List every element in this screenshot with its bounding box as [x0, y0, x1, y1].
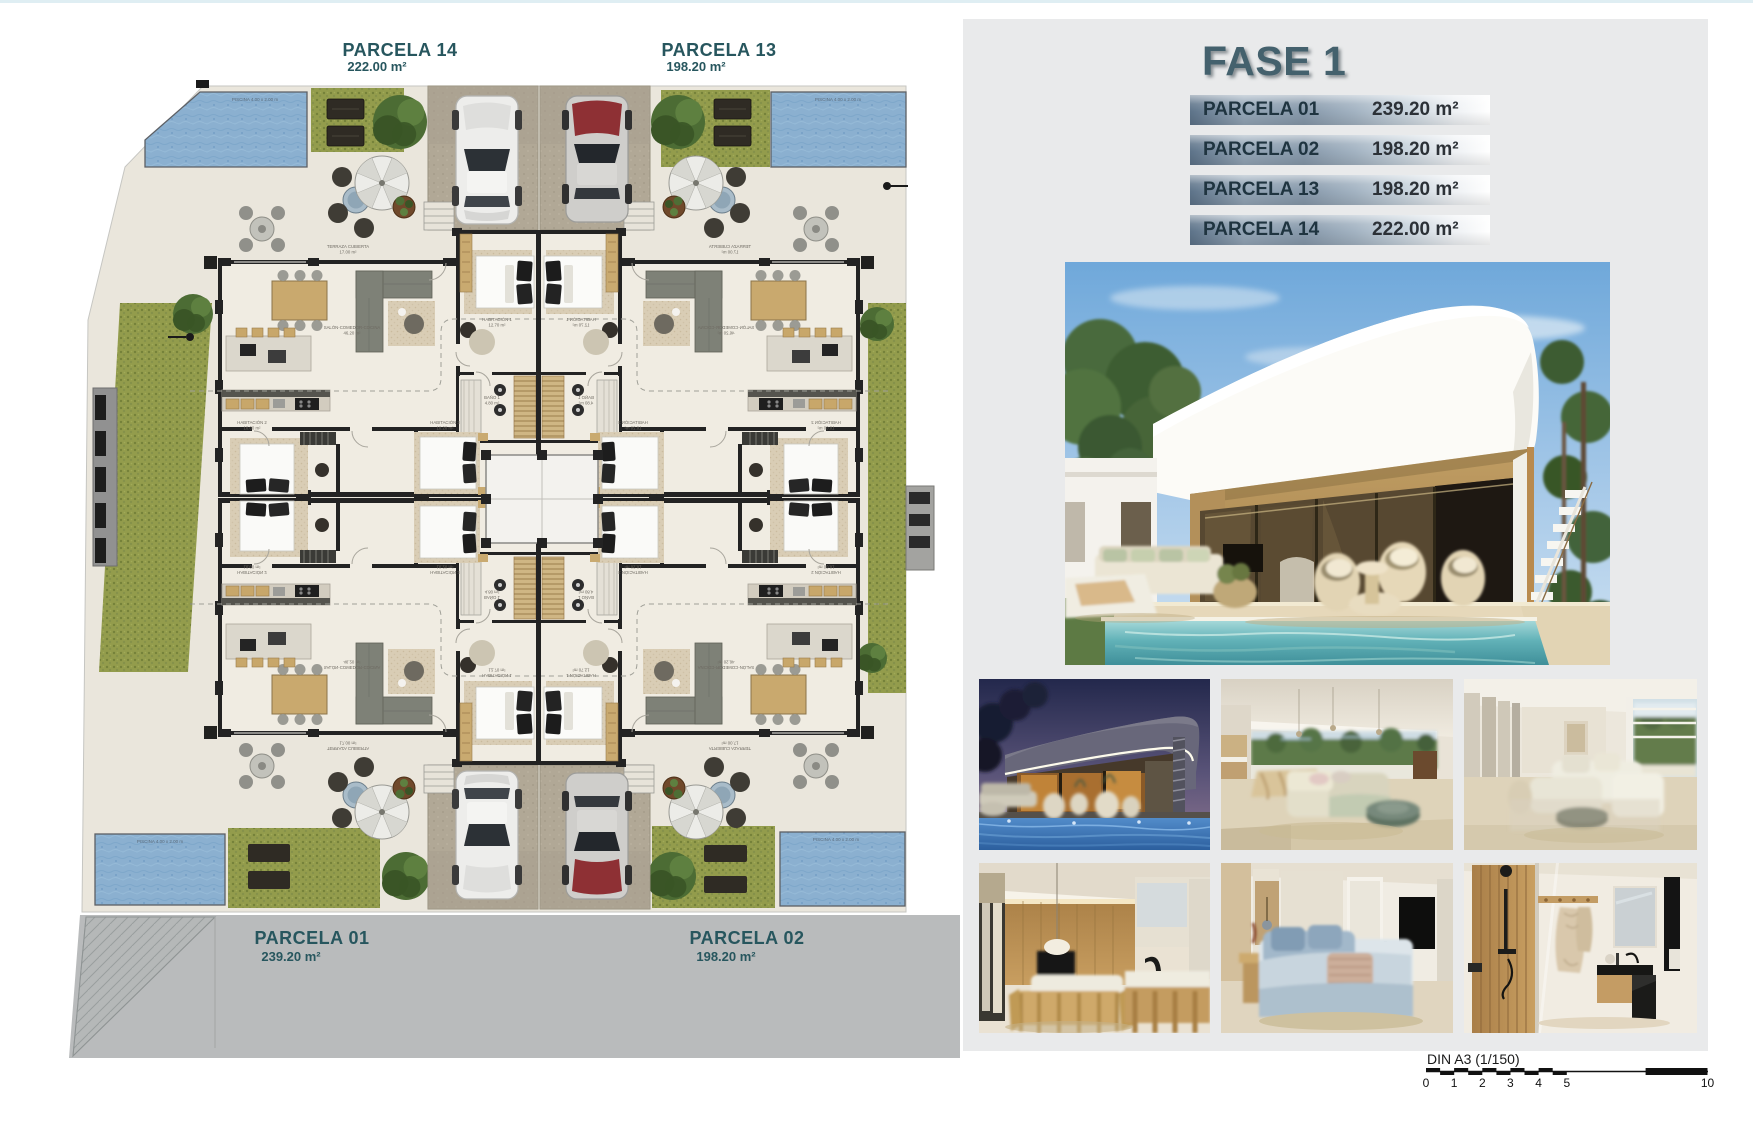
- svg-text:PARCELA 02: PARCELA 02: [689, 928, 804, 948]
- svg-text:PISCINA 4.00 x 2.00 m: PISCINA 4.00 x 2.00 m: [815, 97, 862, 102]
- svg-text:PISCINA 4.00 x 2.00 m: PISCINA 4.00 x 2.00 m: [813, 837, 860, 842]
- svg-text:239.20 m²: 239.20 m²: [261, 949, 321, 964]
- svg-text:10: 10: [1701, 1076, 1715, 1089]
- svg-text:SALÓN-COMEDOR-COCINA: SALÓN-COMEDOR-COCINA: [324, 325, 381, 330]
- svg-text:3: 3: [1507, 1076, 1514, 1089]
- svg-text:5: 5: [1563, 1076, 1570, 1089]
- svg-text:PISCINA 4.00 x 2.00 m: PISCINA 4.00 x 2.00 m: [137, 839, 184, 844]
- svg-text:12.70 m²: 12.70 m²: [489, 323, 507, 328]
- svg-text:222.00 m²: 222.00 m²: [347, 59, 407, 74]
- svg-text:17.00 m²: 17.00 m²: [340, 250, 358, 255]
- svg-text:46.20 m²: 46.20 m²: [344, 331, 362, 336]
- svg-text:10.00 m²: 10.00 m²: [244, 426, 262, 431]
- svg-text:4.80 m²: 4.80 m²: [485, 401, 500, 406]
- svg-text:HABITACIÓN 3: HABITACIÓN 3: [430, 420, 460, 425]
- svg-text:TERRAZA CUBIERTA: TERRAZA CUBIERTA: [327, 244, 369, 249]
- svg-text:HABITACIÓN 1: HABITACIÓN 1: [482, 317, 512, 322]
- svg-text:PISCINA 4.00 x 2.00 m: PISCINA 4.00 x 2.00 m: [232, 97, 279, 102]
- svg-text:10.20 m²: 10.20 m²: [437, 426, 455, 431]
- svg-text:PARCELA 14: PARCELA 14: [342, 40, 457, 60]
- svg-text:198.20 m²: 198.20 m²: [666, 59, 726, 74]
- svg-text:2: 2: [1479, 1076, 1486, 1089]
- svg-text:1: 1: [1451, 1076, 1458, 1089]
- svg-text:198.20 m²: 198.20 m²: [696, 949, 756, 964]
- svg-text:0: 0: [1423, 1076, 1430, 1089]
- svg-text:4: 4: [1535, 1076, 1542, 1089]
- svg-text:HABITACIÓN 2: HABITACIÓN 2: [237, 420, 267, 425]
- svg-text:PARCELA 13: PARCELA 13: [661, 40, 776, 60]
- svg-text:BAÑO 1: BAÑO 1: [484, 395, 500, 400]
- svg-text:PARCELA 01: PARCELA 01: [254, 928, 369, 948]
